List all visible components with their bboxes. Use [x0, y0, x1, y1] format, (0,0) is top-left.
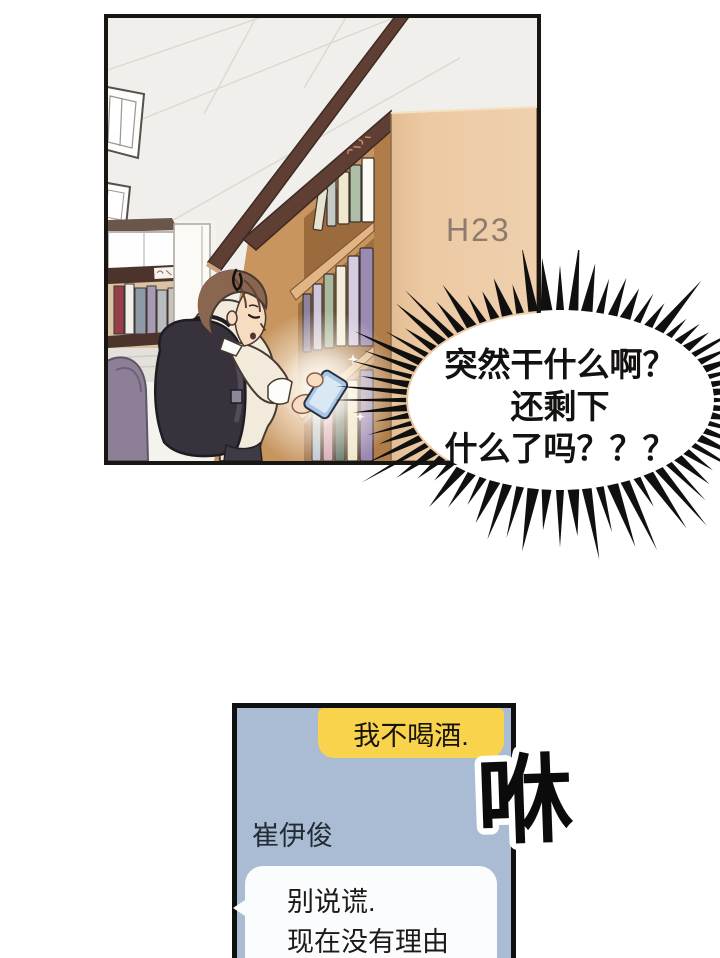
sleeve-cuff [268, 379, 292, 405]
burst-line: 什么了吗？？？ [408, 428, 712, 470]
ear [227, 311, 237, 325]
chat-incoming-bubble: 别说谎. 现在没有理由 [245, 866, 497, 958]
sfx-whoosh-text: 咻 [475, 746, 575, 856]
backpack [155, 320, 245, 456]
chat-contact-name: 崔伊俊 [252, 814, 333, 853]
burst-line: 还剩下 [408, 386, 712, 428]
chair [108, 357, 148, 461]
burst-line: 突然干什么啊？ [408, 344, 712, 386]
backpack-buckle [231, 390, 242, 403]
mouth [250, 333, 256, 340]
hand [307, 373, 323, 387]
wall-molding [108, 218, 178, 232]
ceiling-light-icon [108, 86, 144, 158]
shelf-sign: H23 [446, 212, 511, 249]
sfx-whoosh: 咻 [448, 730, 608, 862]
chat-incoming-line: 别说谎. [287, 882, 497, 922]
bubble-tail [233, 892, 257, 924]
ceiling-light-icon [108, 182, 130, 226]
comic-page: H23 突然干什么啊？ 还剩下 什么了吗？？？ 我不喝酒. 崔伊俊 别说谎. 现… [0, 0, 720, 958]
burst-bubble-text: 突然干什么啊？ 还剩下 什么了吗？？？ [408, 344, 712, 470]
chat-incoming-line: 现在没有理由 [287, 922, 497, 958]
